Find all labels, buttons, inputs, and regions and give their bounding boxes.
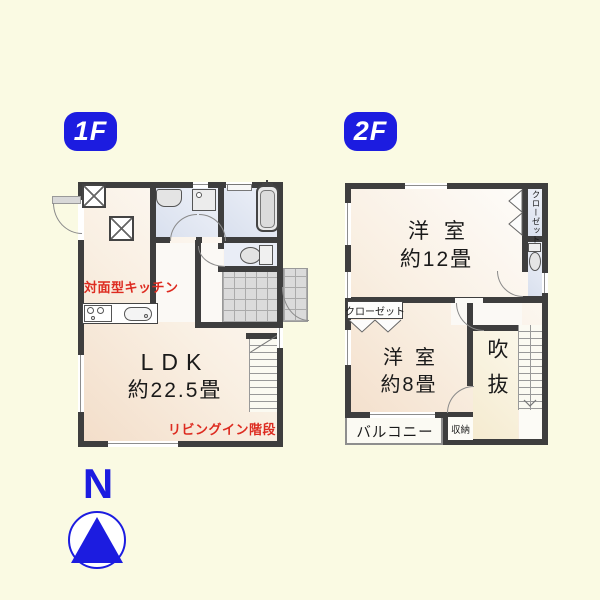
- window: [542, 273, 548, 293]
- toilet-bowl-icon: [529, 252, 541, 271]
- room2-size-label: 約8畳: [351, 368, 467, 397]
- drain-icon: [144, 314, 148, 318]
- burner-icon: [91, 316, 95, 320]
- window: [345, 272, 351, 298]
- room1-size-label: 約12畳: [351, 243, 522, 273]
- pipe-space-icon: [109, 216, 134, 241]
- burner-icon: [87, 307, 94, 314]
- window: [277, 328, 283, 348]
- wall: [150, 237, 170, 243]
- window: [405, 183, 447, 189]
- floor2-badge: 2F: [344, 112, 397, 151]
- toilet-tank-icon: [528, 243, 541, 252]
- floor1-entrance-tile: [223, 272, 277, 322]
- living-stairs-label: リビングイン階段: [168, 419, 276, 438]
- pipe-space-icon: [82, 184, 106, 208]
- bath-window-sill: [227, 184, 252, 191]
- ldk-label: LDK: [105, 349, 245, 376]
- north-arrow-icon: [71, 517, 123, 563]
- faucet-icon: [266, 180, 268, 187]
- north-label: N: [74, 460, 122, 508]
- door-arc: [53, 203, 82, 234]
- floor1-badge: 1F: [64, 112, 117, 151]
- stairs-arrow-icon: [523, 399, 538, 408]
- kitchen-label: 対面型キッチン: [84, 277, 179, 296]
- window: [108, 441, 178, 447]
- closet-left-label: クローゼット: [345, 303, 405, 318]
- sink-icon: [124, 307, 152, 321]
- balcony-label: バルコニー: [350, 421, 440, 442]
- bathtub-inner: [260, 190, 275, 228]
- void-label: 吹抜: [485, 338, 511, 438]
- burner-icon: [97, 307, 104, 314]
- toilet-bowl-icon: [240, 247, 261, 264]
- storage-label: 収納: [446, 422, 475, 436]
- floorplan-page: 1F 2F 対面: [0, 0, 600, 600]
- washbasin-icon: [156, 189, 182, 207]
- stairs-center-line: [530, 325, 531, 410]
- drain-icon: [196, 192, 202, 198]
- balcony-window: [370, 412, 435, 418]
- entrance-step-line: [222, 272, 223, 322]
- wall: [222, 237, 283, 243]
- wall: [522, 296, 548, 303]
- folding-door-icon: [348, 319, 402, 334]
- closet-right-label: クローゼット: [527, 190, 542, 236]
- room1-label: 洋室: [351, 215, 522, 245]
- stairs-landing: [519, 410, 542, 439]
- window: [78, 355, 84, 412]
- closet-left-box: クローゼット: [347, 301, 403, 319]
- wall: [195, 322, 283, 328]
- toilet-tank-icon: [259, 245, 273, 265]
- wall: [218, 266, 283, 272]
- stairs-edge-line: [518, 325, 519, 410]
- room2-label: 洋室: [351, 341, 467, 370]
- ldk-size-label: 約22.5畳: [95, 374, 255, 404]
- window: [193, 182, 208, 188]
